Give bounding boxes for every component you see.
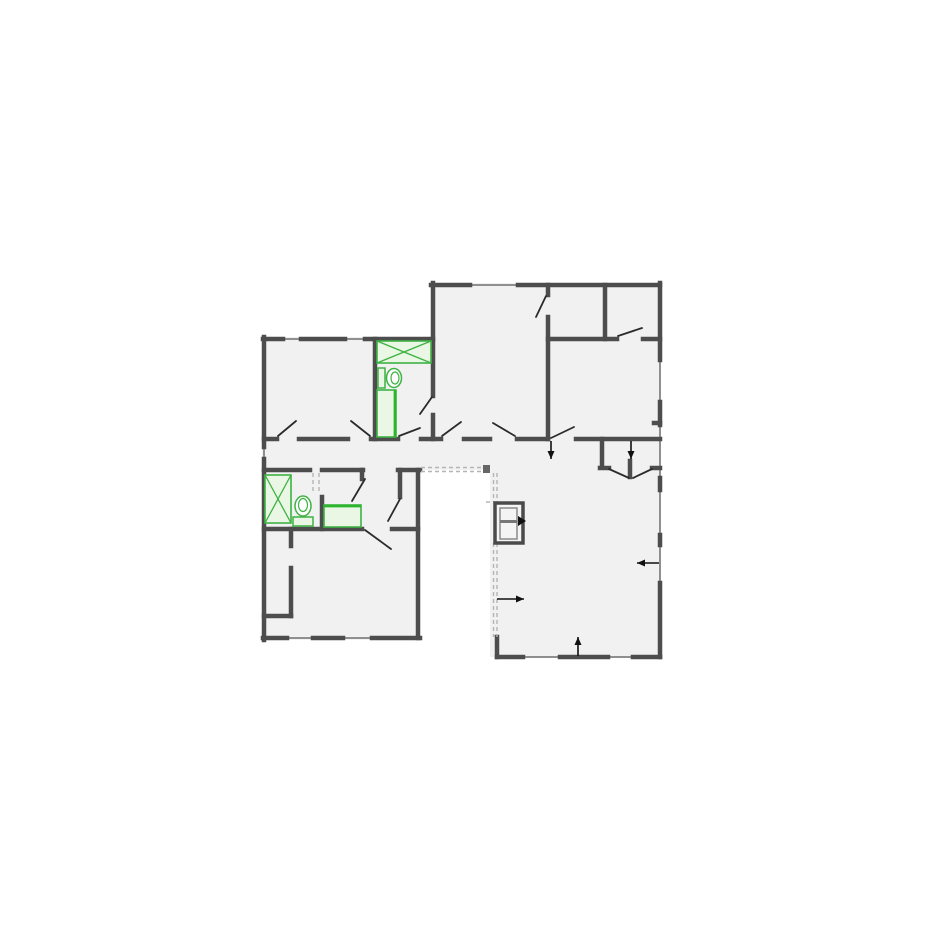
bathtub — [377, 341, 431, 363]
cabinet — [495, 503, 526, 543]
floor-plan-page — [0, 0, 925, 925]
floor-plan-svg — [0, 0, 925, 925]
shower — [265, 475, 291, 523]
